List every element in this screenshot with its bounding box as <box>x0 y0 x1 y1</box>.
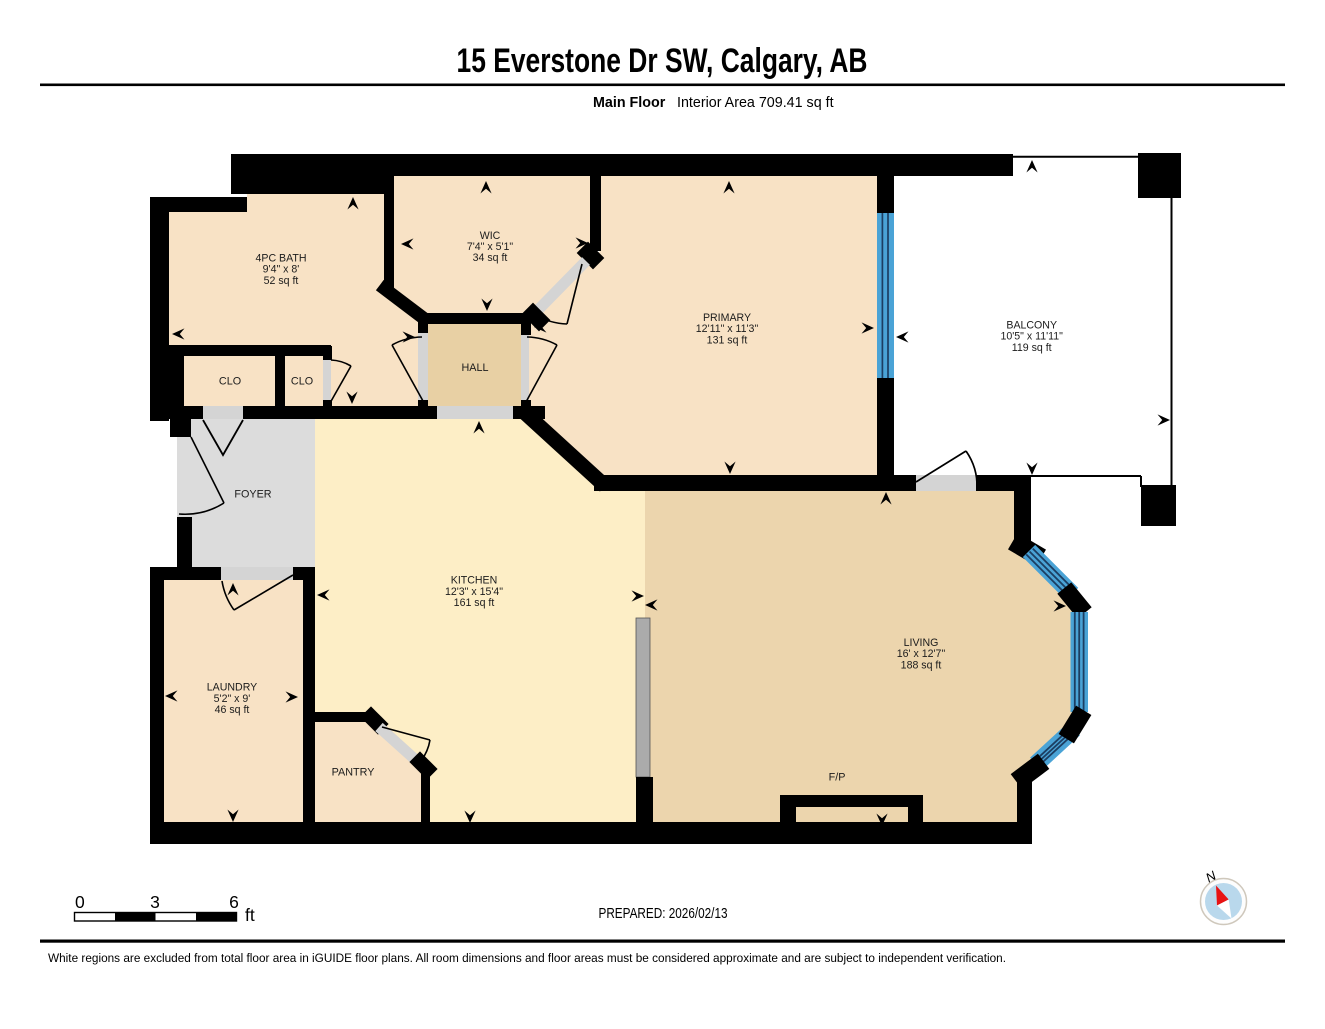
svg-text:CLO: CLO <box>219 376 241 388</box>
svg-text:15 Everstone Dr SW, Calgary, A: 15 Everstone Dr SW, Calgary, AB <box>457 42 868 80</box>
svg-text:10'5" x 11'11": 10'5" x 11'11" <box>1000 331 1063 343</box>
svg-text:WIC: WIC <box>480 230 501 242</box>
svg-text:ft: ft <box>245 905 255 925</box>
svg-text:Interior Area 709.41 sq ft: Interior Area 709.41 sq ft <box>677 95 834 111</box>
svg-text:16' x 12'7": 16' x 12'7" <box>897 648 946 660</box>
svg-text:5'2" x 9': 5'2" x 9' <box>214 693 251 705</box>
svg-text:Main Floor: Main Floor <box>593 95 666 111</box>
svg-text:161 sq ft: 161 sq ft <box>454 597 495 609</box>
svg-text:White regions are excluded fro: White regions are excluded from total fl… <box>48 951 1006 965</box>
svg-text:BALCONY: BALCONY <box>1006 319 1057 331</box>
svg-text:7'4" x 5'1": 7'4" x 5'1" <box>467 241 514 253</box>
svg-text:34 sq ft: 34 sq ft <box>473 252 508 264</box>
svg-text:0: 0 <box>75 892 85 912</box>
svg-text:PREPARED: 2026/02/13: PREPARED: 2026/02/13 <box>599 906 728 922</box>
svg-text:PRIMARY: PRIMARY <box>703 312 751 324</box>
svg-text:4PC BATH: 4PC BATH <box>255 253 306 265</box>
svg-text:52 sq ft: 52 sq ft <box>264 275 299 287</box>
svg-text:6: 6 <box>229 892 239 912</box>
svg-text:119 sq ft: 119 sq ft <box>1012 342 1052 354</box>
svg-text:F/P: F/P <box>829 772 846 784</box>
svg-text:CLO: CLO <box>291 376 313 388</box>
svg-text:131 sq ft: 131 sq ft <box>707 334 748 346</box>
svg-text:9'4" x 8': 9'4" x 8' <box>263 264 300 276</box>
svg-text:3: 3 <box>150 892 160 912</box>
svg-text:FOYER: FOYER <box>234 489 271 501</box>
svg-text:46 sq ft: 46 sq ft <box>215 704 250 716</box>
svg-text:188 sq ft: 188 sq ft <box>901 659 942 671</box>
svg-text:KITCHEN: KITCHEN <box>451 575 498 587</box>
svg-text:LIVING: LIVING <box>904 637 939 649</box>
svg-text:12'3" x 15'4": 12'3" x 15'4" <box>445 586 503 598</box>
svg-text:HALL: HALL <box>461 362 488 374</box>
svg-text:PANTRY: PANTRY <box>332 767 375 779</box>
svg-text:12'11" x 11'3": 12'11" x 11'3" <box>696 323 759 335</box>
svg-text:LAUNDRY: LAUNDRY <box>207 682 257 694</box>
